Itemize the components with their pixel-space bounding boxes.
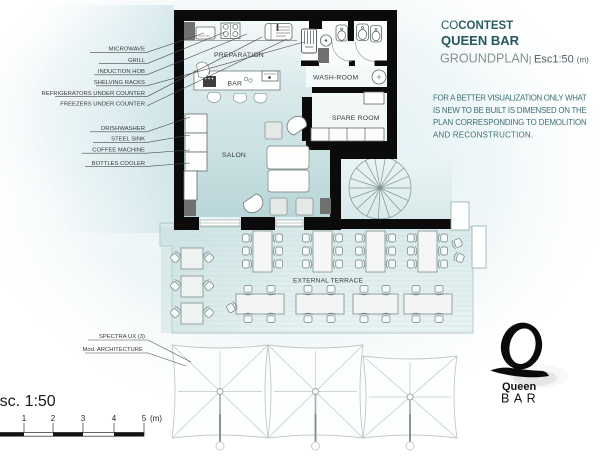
svg-text:QUEEN BAR: QUEEN BAR: [441, 33, 520, 48]
svg-text:PLAN CORRESPONDING TO DEMOL: PLAN CORRESPONDING TO DEMOLITION: [433, 118, 587, 127]
svg-text:Esc. 1:50: Esc. 1:50: [0, 393, 56, 410]
svg-text:DRISHWASHER: DRISHWASHER: [101, 126, 145, 132]
svg-text:MICROWAVE: MICROWAVE: [109, 47, 145, 53]
svg-text:COCONTEST: COCONTEST: [441, 20, 513, 32]
svg-text:SALON: SALON: [222, 152, 246, 159]
svg-text:3: 3: [81, 414, 86, 423]
svg-text:BAR: BAR: [501, 392, 540, 406]
svg-text:GROUNDPLAN| Esc1:50 (m): GROUNDPLAN| Esc1:50 (m): [440, 52, 589, 66]
svg-text:STEEL SINK: STEEL SINK: [111, 137, 145, 143]
svg-text:FREEZERS UNDER COUNTER: FREEZERS UNDER COUNTER: [60, 102, 145, 108]
svg-text:SPECTRA UX (3): SPECTRA UX (3): [99, 334, 145, 340]
svg-text:(m): (m): [150, 414, 162, 423]
svg-text:REFRIGERATORS UNDER COUNTER: REFRIGERATORS UNDER COUNTER: [41, 91, 145, 97]
svg-text:FOR A BETTER VISUALIZATION ONL: FOR A BETTER VISUALIZATION ONLY WHAT: [433, 94, 587, 103]
svg-text:EXTERNAL TERRACE: EXTERNAL TERRACE: [293, 278, 363, 285]
svg-text:COFFEE MACHINE: COFFEE MACHINE: [92, 148, 145, 154]
svg-text:Mod. ARCHITECTURE: Mod. ARCHITECTURE: [82, 347, 143, 353]
svg-text:2: 2: [51, 414, 56, 423]
svg-text:4: 4: [112, 414, 117, 423]
svg-text:SPARE ROOM: SPARE ROOM: [332, 115, 380, 122]
svg-text:SHELVING RACKS: SHELVING RACKS: [94, 80, 145, 86]
svg-text:AND RECONSTRUCTION.: AND RECONSTRUCTION.: [433, 130, 533, 139]
svg-text:5: 5: [142, 414, 147, 423]
svg-text:IS NEW TO BE BUILT IS DIMENSED: IS NEW TO BE BUILT IS DIMENSED ON THE: [433, 106, 587, 115]
svg-text:WASH-ROOM: WASH-ROOM: [313, 75, 358, 82]
svg-text:GRILL: GRILL: [128, 58, 146, 64]
svg-text:BAR: BAR: [228, 81, 243, 88]
svg-text:INDUCTION HOB: INDUCTION HOB: [98, 69, 145, 75]
svg-text:1: 1: [22, 414, 27, 423]
